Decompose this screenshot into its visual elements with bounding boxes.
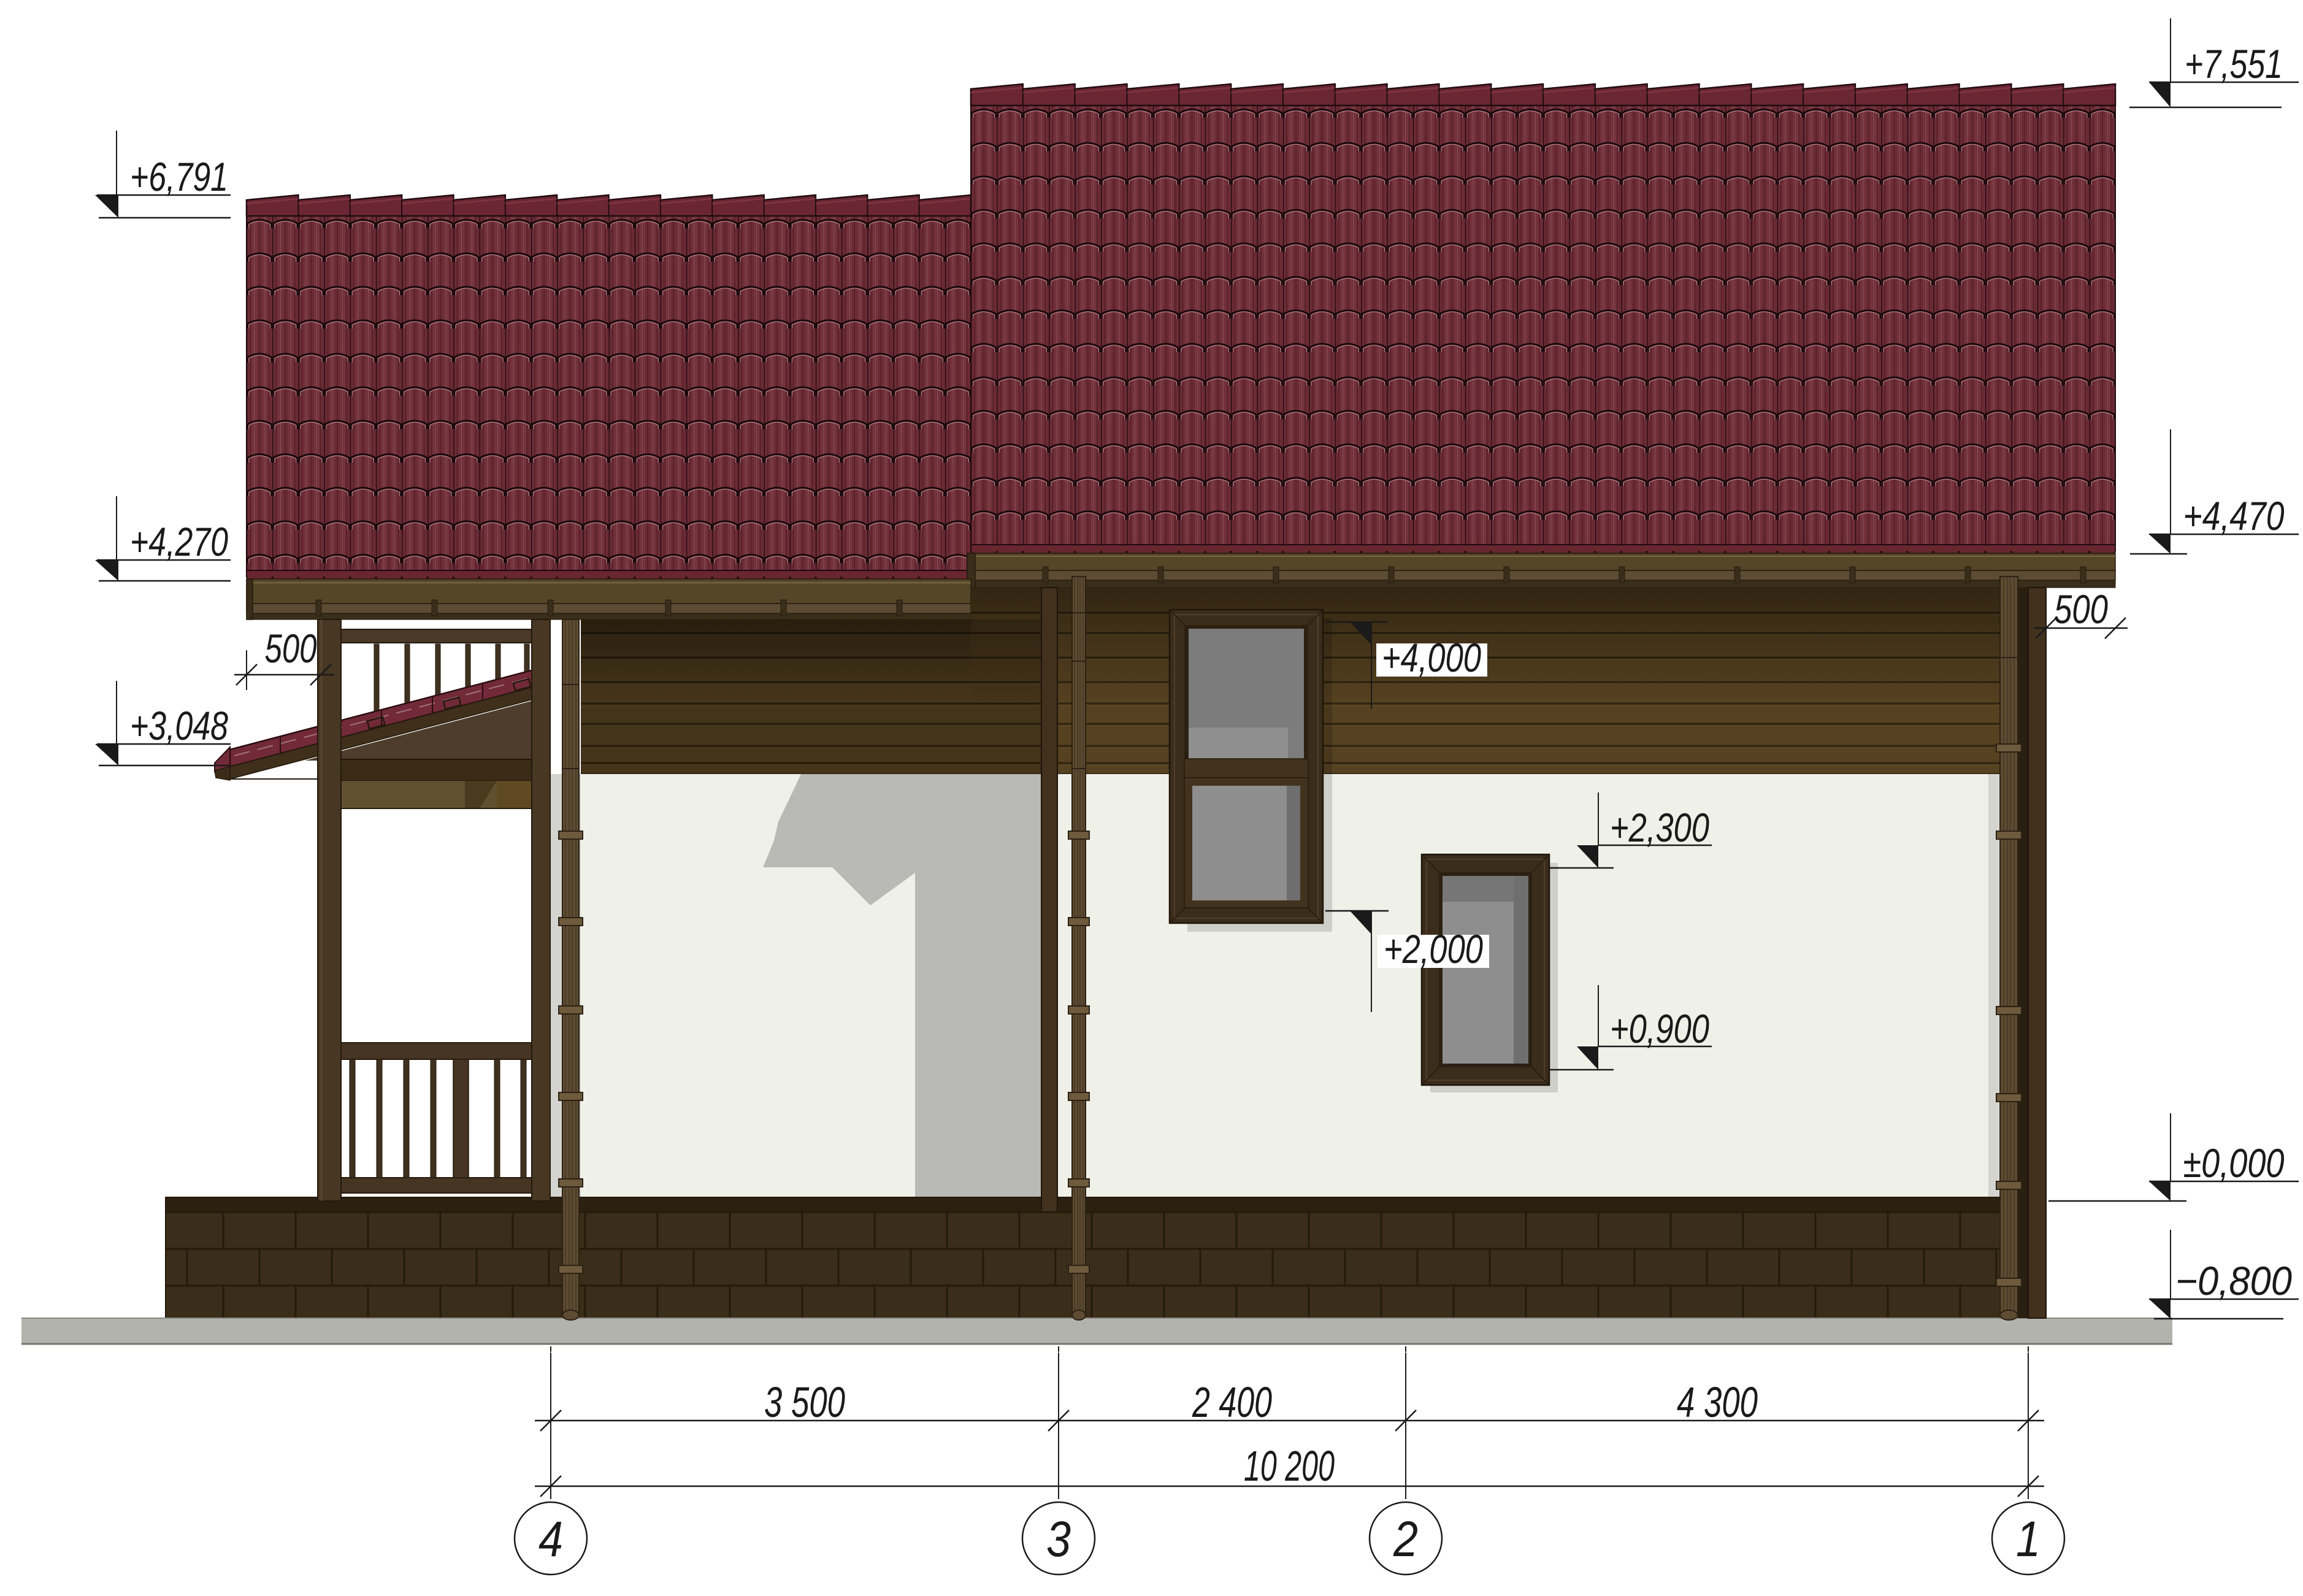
svg-text:+0,900: +0,900 (1610, 1006, 1709, 1051)
svg-text:−0,800: −0,800 (2175, 1258, 2292, 1303)
svg-text:+3,048: +3,048 (130, 703, 228, 748)
svg-text:+2,000: +2,000 (1384, 926, 1483, 972)
svg-text:3: 3 (1046, 1511, 1071, 1567)
svg-text:500: 500 (2054, 586, 2108, 632)
svg-text:1: 1 (2016, 1511, 2041, 1567)
svg-text:+4,470: +4,470 (2183, 493, 2285, 539)
svg-text:2 400: 2 400 (1192, 1378, 1272, 1426)
svg-text:500: 500 (265, 626, 317, 671)
svg-text:10 200: 10 200 (1244, 1442, 1335, 1490)
svg-text:+4,270: +4,270 (130, 519, 228, 564)
svg-text:+2,300: +2,300 (1610, 805, 1709, 850)
svg-text:+7,551: +7,551 (2185, 41, 2283, 86)
svg-text:+4,000: +4,000 (1382, 635, 1481, 680)
svg-text:3 500: 3 500 (764, 1378, 845, 1426)
svg-text:±0,000: ±0,000 (2183, 1140, 2285, 1186)
svg-text:4 300: 4 300 (1677, 1378, 1758, 1426)
svg-text:+6,791: +6,791 (130, 154, 228, 199)
svg-text:4: 4 (538, 1511, 563, 1567)
svg-text:2: 2 (1393, 1511, 1418, 1567)
